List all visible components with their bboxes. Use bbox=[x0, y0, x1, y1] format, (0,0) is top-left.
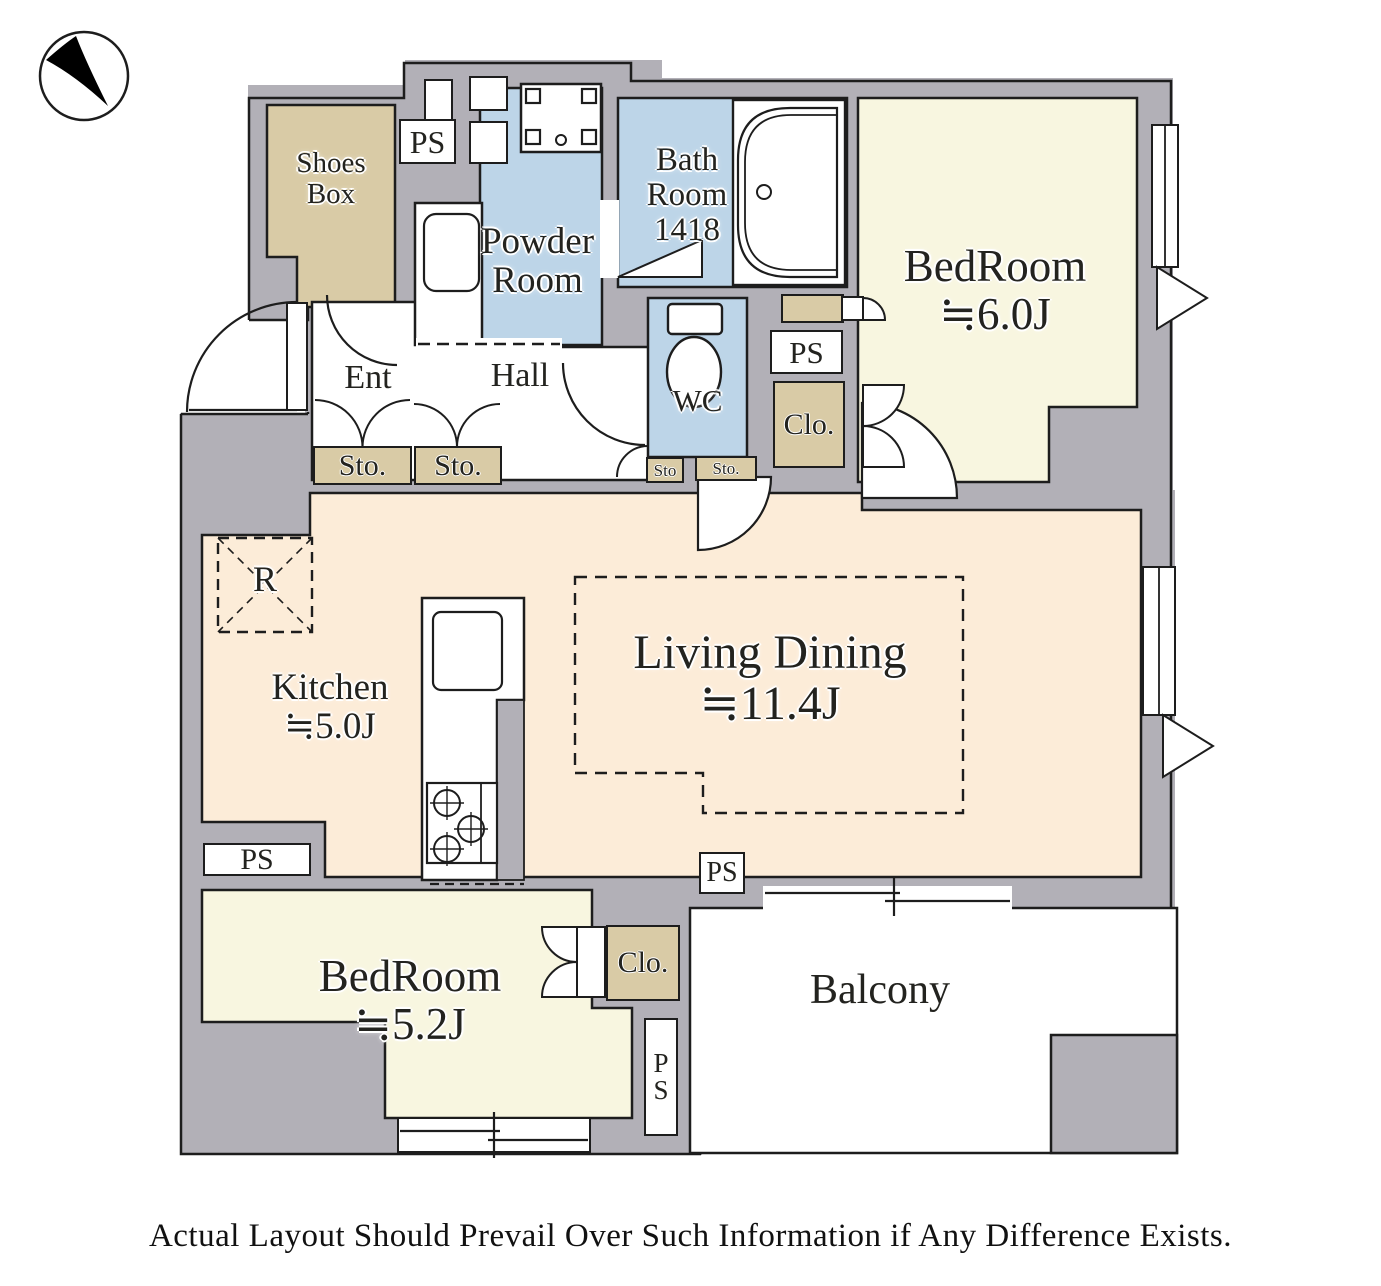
balcony-label: Balcony bbox=[700, 968, 1060, 1013]
balcony-wall-block bbox=[1051, 1035, 1177, 1153]
ps-label-top: PS bbox=[399, 119, 456, 164]
shoes-box-label: Shoes Box bbox=[267, 148, 395, 209]
bath-room-label: Bath Room 1418 bbox=[612, 143, 762, 248]
window-bedroom-main bbox=[1152, 125, 1207, 329]
bedroom-second-label: BedRoom ≒5.2J bbox=[230, 953, 590, 1048]
storage-label-2: Sto. bbox=[414, 446, 502, 485]
floorplan-page: Shoes Box PS Powder Room Bath Room 1418 … bbox=[0, 0, 1381, 1286]
hall-label: Hall bbox=[455, 358, 585, 394]
storage-label-small-2: Sto. bbox=[695, 456, 757, 481]
living-dining-label: Living Dining ≒11.4J bbox=[570, 628, 970, 730]
ps-label-mid: PS bbox=[770, 330, 843, 374]
ps-label-vertical: P S bbox=[644, 1018, 678, 1136]
kitchen-counter bbox=[422, 598, 524, 884]
closet-label-second: Clo. bbox=[606, 925, 680, 1001]
closet-label-main: Clo. bbox=[773, 381, 845, 468]
refrigerator-label: R bbox=[218, 560, 312, 598]
compass-north-icon bbox=[36, 28, 132, 124]
kitchen-label: Kitchen ≒5.0J bbox=[225, 668, 435, 746]
ps-label-kitchen: PS bbox=[203, 843, 311, 876]
washing-machine-icon bbox=[521, 84, 601, 152]
storage-label-1: Sto. bbox=[313, 446, 412, 485]
entrance-label: Ent bbox=[318, 360, 418, 396]
ps-label-living: PS bbox=[699, 852, 745, 894]
sink-icon bbox=[433, 612, 502, 690]
wc-label: WC bbox=[648, 385, 747, 418]
window-bedroom-second bbox=[398, 1112, 590, 1158]
storage-label-small-1: Sto bbox=[646, 457, 684, 483]
disclaimer-text: Actual Layout Should Prevail Over Such I… bbox=[0, 1218, 1381, 1255]
bedroom-main-label: BedRoom ≒6.0J bbox=[830, 243, 1160, 338]
